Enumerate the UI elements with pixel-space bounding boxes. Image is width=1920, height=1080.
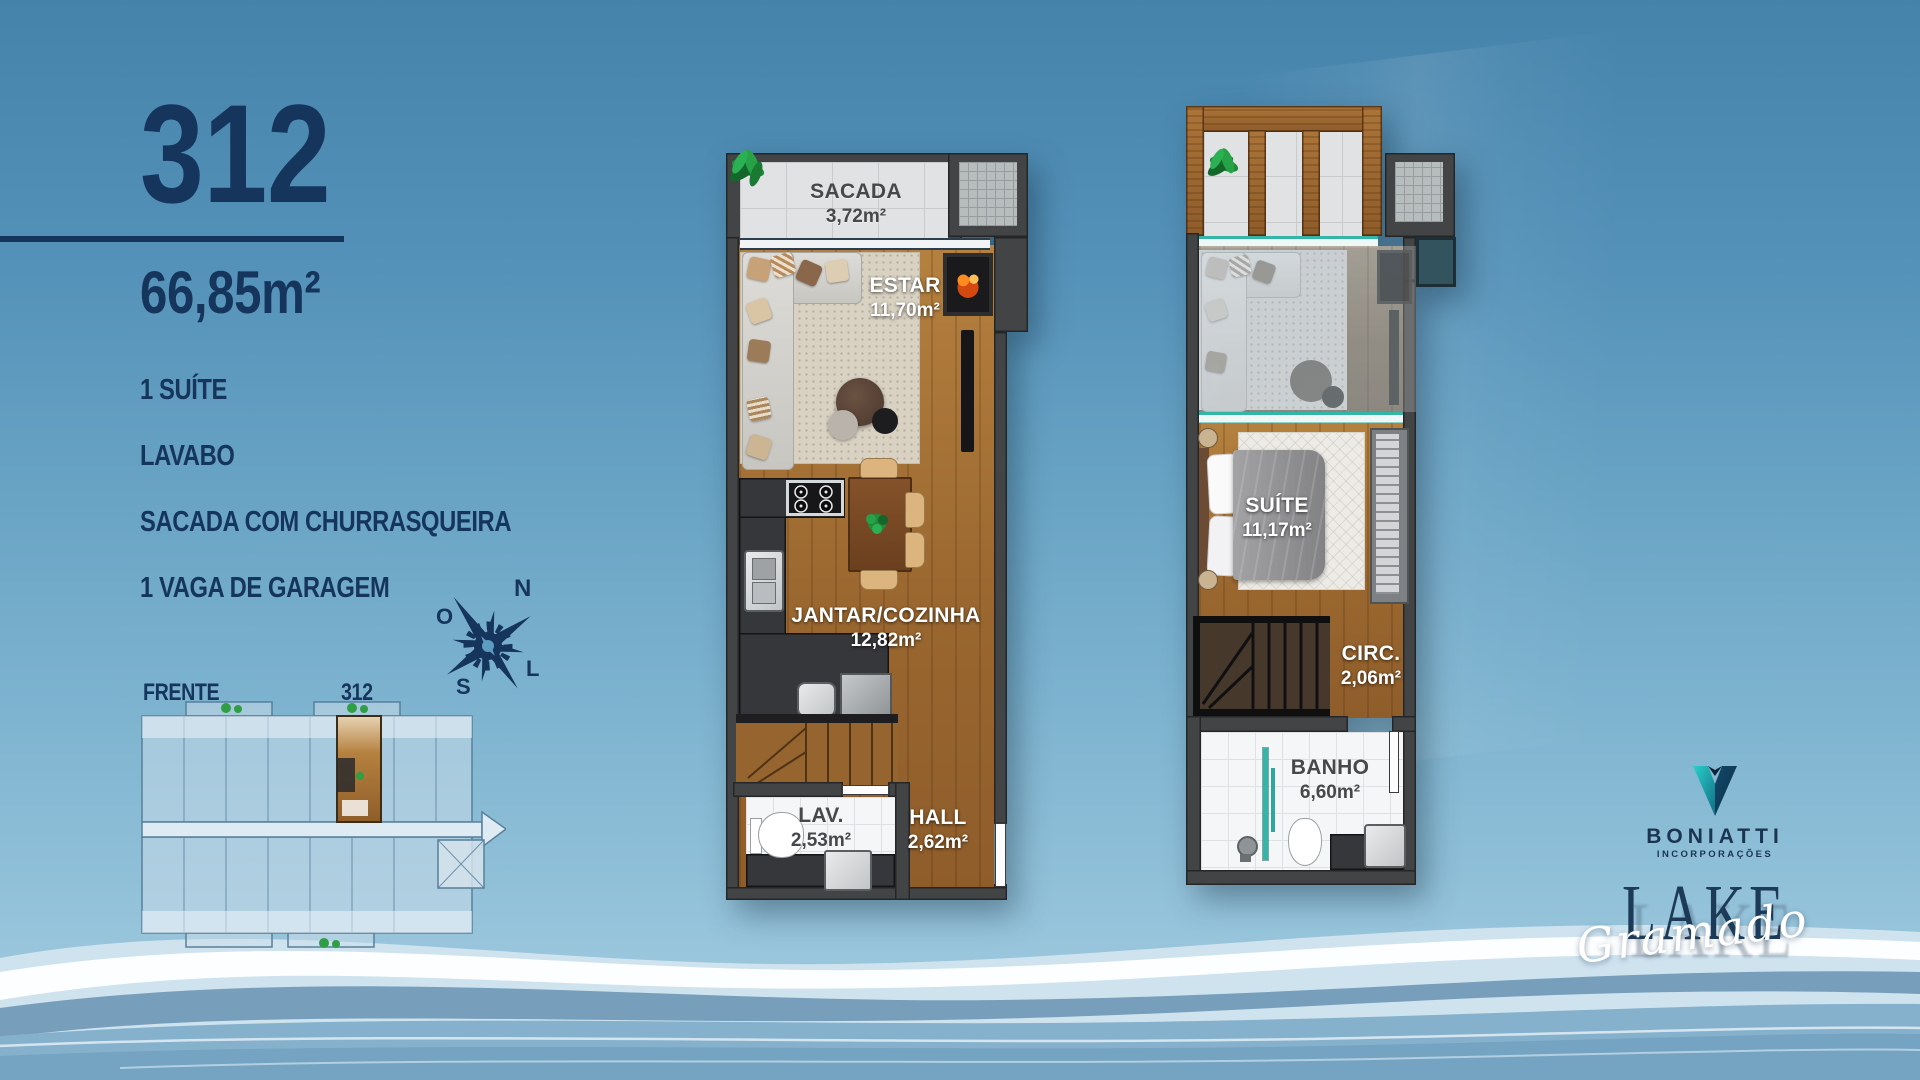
room-label-banho: BANHO 6,60m²: [1291, 754, 1370, 806]
developer-logo: BONIATTI INCORPORAÇÕES: [1620, 764, 1810, 864]
pergola-column: [1362, 106, 1382, 236]
banho-door: [1390, 732, 1398, 792]
flyer-canvas: 312 66,85m² 1 SUÍTE LAVABO SACADA COM CH…: [0, 0, 1920, 1080]
pergola-mullion: [1302, 130, 1320, 236]
upper-churrasqueira-counter: [1395, 162, 1443, 222]
upper-glass-panel: [1416, 237, 1456, 287]
developer-name: BONIATTI: [1620, 825, 1810, 849]
shower-base: [1240, 854, 1251, 862]
banho-wall-top2: [1392, 716, 1416, 732]
room-label-circ: CIRC. 2,06m²: [1341, 640, 1401, 692]
staircase-upper: [1193, 616, 1330, 716]
room-label-suite: SUÍTE 11,17m²: [1242, 492, 1312, 544]
void-glass-rail: [1199, 412, 1403, 423]
banho-wall-bottom: [1186, 870, 1416, 885]
developer-subtitle: INCORPORAÇÕES: [1620, 849, 1810, 860]
shower-glass: [1263, 748, 1268, 860]
banho-wall-left: [1186, 716, 1201, 885]
plant-icon: [1196, 138, 1252, 194]
vanity-sink: [1364, 824, 1406, 868]
shower-glass-door: [1271, 768, 1275, 832]
nightstand: [1198, 428, 1218, 448]
wardrobe: [1370, 428, 1409, 604]
nightstand: [1198, 570, 1218, 590]
banho-wall-top: [1186, 716, 1348, 732]
void-overlay: [1199, 246, 1416, 412]
toilet-upper: [1288, 818, 1322, 866]
boniatti-v-icon: [1691, 764, 1739, 820]
pergola-beam: [1186, 106, 1382, 132]
